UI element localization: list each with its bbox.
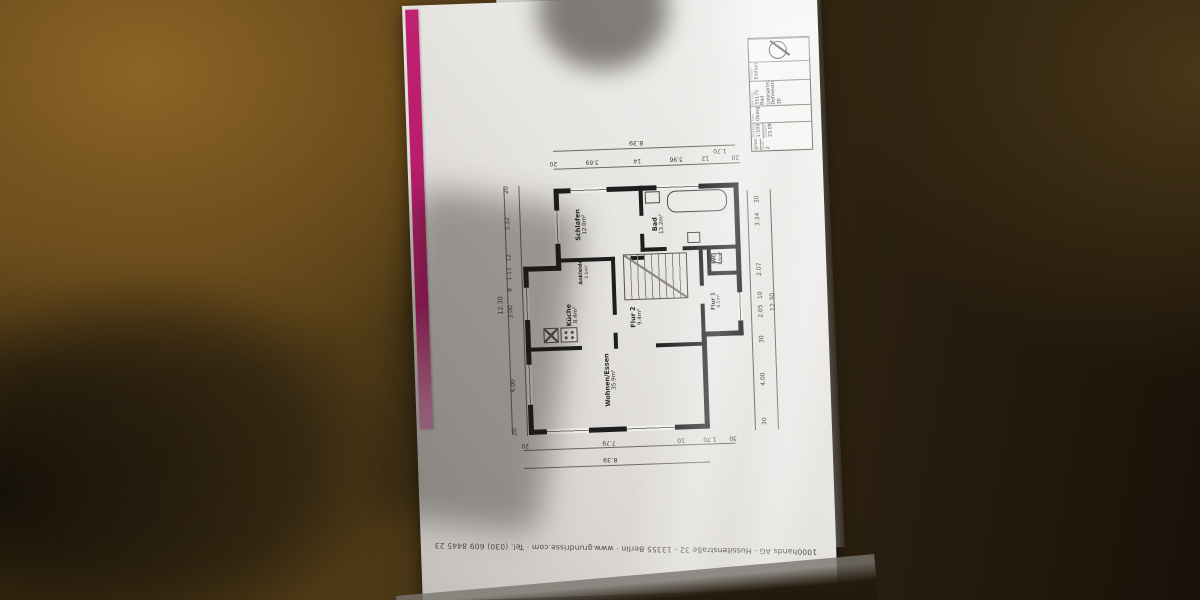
dimension-text: 10 [757, 287, 765, 303]
dimension-text: 3.69 [586, 158, 599, 165]
dimension-text: 3.96 [670, 156, 683, 163]
dimension-text: 12.30 [496, 299, 505, 315]
dimension-text: 30 [729, 435, 737, 442]
dimension-text: 4.00 [759, 371, 767, 387]
dimension-text: 10 [677, 437, 685, 444]
wall-segment [733, 182, 742, 292]
wall-segment [523, 266, 561, 272]
room-label-flur2: Flur 2 9.4m² [629, 285, 645, 349]
room-label-wohnen-essen: Wohnen/Essen 35.9m² [603, 348, 619, 412]
wall-segment [701, 304, 706, 332]
sheet-value: 2 [766, 139, 772, 149]
north-arrow-logo-icon [748, 37, 809, 62]
dimension-text: 20 [550, 160, 558, 167]
dimension-text: 20 [731, 153, 739, 160]
kitchen-sink-icon [543, 328, 559, 344]
window-marker [554, 211, 560, 244]
wall-segment [553, 189, 559, 211]
window-marker [524, 288, 530, 320]
toilet-icon [687, 232, 700, 243]
wall-segment [738, 320, 744, 335]
dimension-text: 8.39 [629, 139, 643, 147]
dimension-text: 20 [511, 424, 519, 440]
wall-segment [589, 426, 627, 432]
dimension-text: 30 [761, 413, 769, 429]
wall-segment [529, 429, 547, 435]
dimension-text: 30 [753, 191, 761, 207]
title-block-project-cell: Projekt Einfamilienhaus [749, 60, 810, 81]
sheet-footer: 1000hands AG - Hussitenstraße 32 - 13355… [441, 541, 817, 557]
brand-signature: grundrisse.com [753, 139, 759, 149]
wall-segment [702, 332, 710, 429]
dimension-text: 8.39 [603, 456, 617, 464]
title-block-plan-cell: Plan Obergeschoss [751, 104, 812, 122]
dimension-text: 30 [758, 331, 766, 347]
dimension-text: 12 [505, 250, 513, 266]
floor-plan-drawing: Schlafen 12.0m² Bad 13.2m² Ankleide 3.1m… [402, 0, 817, 6]
binder-strip [405, 9, 433, 429]
dimension-text: 2.07 [756, 261, 764, 277]
room-label-schlafen: Schlafen 12.0m² [574, 193, 590, 257]
dimension-line [553, 144, 735, 151]
dimension-text: 3.34 [754, 211, 762, 227]
dimension-text: 1.11 [506, 266, 514, 282]
dimension-text: 20 [503, 182, 511, 198]
floor-plan-sheet: Projekt Einfamilienhaus Adresse 33175 Ba… [402, 0, 838, 600]
room-label-flur1: Flur 1 8.5m² [710, 281, 723, 321]
date-value: 23.09.2020 [769, 124, 775, 137]
title-block-signature-cell: grundrisse.com Blatt 2 [752, 137, 812, 151]
window-marker [547, 428, 589, 434]
dimension-text: 2.05 [757, 303, 765, 319]
title-block-meta-cell: Maßstab 1:100/A4 Datum 23.09.2020 [751, 120, 812, 138]
wall-segment [640, 234, 645, 252]
dimension-text: 7.79 [602, 439, 615, 446]
dimension-text: 20 [521, 442, 529, 449]
dimension-text: 3.00 [507, 304, 515, 320]
scale-value: 1:100/A4 [756, 124, 762, 137]
title-block: Projekt Einfamilienhaus Adresse 33175 Ba… [747, 36, 813, 152]
wall-segment [614, 333, 619, 349]
wall-segment [525, 320, 532, 365]
dimension-line [554, 162, 740, 169]
dimension-text: 12 [701, 155, 709, 162]
window-marker [527, 365, 533, 405]
wall-segment [611, 257, 617, 315]
dimension-text: 12.30 [768, 295, 777, 311]
window-marker [627, 425, 675, 432]
dimension-text: 14 [634, 157, 642, 164]
project-value: Einfamilienhaus [754, 63, 760, 79]
photo-scene: Projekt Einfamilienhaus Adresse 33175 Ba… [0, 0, 1200, 600]
plan-value: Obergeschoss [756, 108, 762, 121]
dimension-text: 1.70 [703, 436, 716, 443]
room-label-wc: WC 1.6m² [712, 243, 724, 273]
address-value: 33175 Bad Lippspringe, Dehnestraße 30 [755, 82, 783, 106]
room-label-bad: Bad 13.2m² [651, 192, 667, 256]
room-label-kueche: Küche 8.4m² [565, 283, 581, 347]
window-marker [737, 292, 743, 320]
dimension-text: 4.00 [510, 378, 518, 394]
bathtub-icon [667, 189, 728, 213]
dimension-text: 1.70 [713, 147, 726, 154]
wall-segment [702, 330, 744, 336]
dimension-text: 3.32 [504, 216, 512, 232]
title-block-address-cell: Adresse 33175 Bad Lippspringe, Dehnestra… [750, 79, 811, 107]
wall-segment [656, 342, 707, 348]
dimension-line [524, 443, 736, 451]
title-block-frame: Projekt Einfamilienhaus Adresse 33175 Ba… [747, 36, 813, 152]
wall-segment [699, 250, 704, 286]
room-label-ankleide: Ankleide 3.1m² [578, 252, 590, 292]
dimension-text: 8 [506, 282, 514, 298]
wall-segment [523, 267, 529, 288]
